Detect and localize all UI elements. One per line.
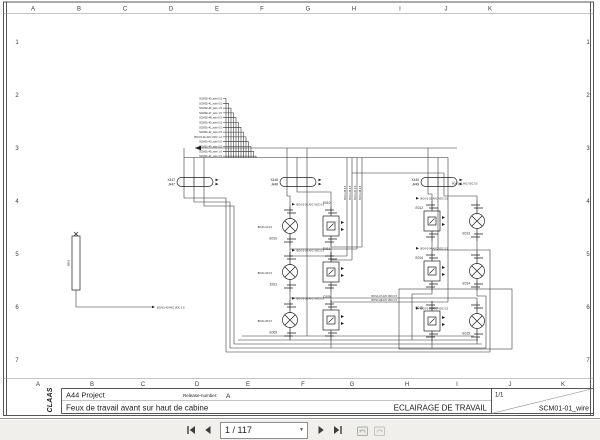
lamp-cluster-e015: E015 E015 BO/V1-06 AVC VDC 0.5 (416, 301, 485, 341)
ruler-number: 7 (15, 358, 19, 364)
last-page-icon (333, 425, 343, 435)
previous-view-button[interactable] (355, 422, 370, 438)
wire-label: BO/41-05 0.5 (344, 185, 347, 200)
claas-logo: CLAAS (47, 387, 54, 412)
next-view-button[interactable] (372, 422, 387, 438)
wire-label: BO/V1-02 AVC VDC 0.5 (421, 197, 449, 201)
last-page-button[interactable] (330, 422, 345, 438)
wire-label: BO/V1-41 AVC VDC 0.5 (452, 183, 478, 186)
ruler-letter: B (90, 382, 94, 388)
ruler-letter: C (141, 382, 146, 388)
ruler-letter: K (488, 7, 492, 13)
ruler-number: 6 (586, 305, 590, 311)
next-page-button[interactable] (313, 422, 328, 438)
viewer-toolbar: ▼ (0, 418, 600, 440)
lamp-cluster-e011: E011 E011 BO/V1-03 AVC VDC 0.5 BO/41-03 … (258, 247, 344, 292)
wire-label: BO/V1-04 AVC VDC 0.5 (421, 247, 449, 251)
wire-label: BO/V1-01 AVC VDC 0.5 (297, 203, 325, 207)
ruler-number: 7 (586, 358, 590, 364)
viewer-window: A B C D E F G H I J K A B C D E F G H I … (0, 0, 600, 440)
ruler-letter: I (456, 382, 458, 388)
wire-label: BO/41-06 0.5 (349, 185, 352, 200)
release-value: A (226, 393, 231, 400)
ruler-letter: F (301, 382, 305, 388)
ruler-number: 4 (15, 199, 19, 205)
next-page-icon (316, 425, 326, 435)
ruler-top: A B C D E F G H I J K (31, 7, 492, 13)
connector-mate-id: J448 (271, 183, 278, 187)
ruler-number: 2 (586, 93, 590, 99)
ruler-letter: B (77, 7, 81, 13)
ruler-letter: J (445, 7, 448, 13)
ruler-number: 3 (586, 146, 590, 152)
wire-label: BO/V1-05 AVC VDC 0.5 (297, 297, 325, 301)
connector-id: X447 (168, 178, 176, 182)
sheet-subtitle: Feux de travail avant sur haut de cabine (66, 404, 209, 413)
ruler-number: 5 (15, 252, 19, 258)
previous-view-icon (356, 424, 369, 437)
wire-label: BO/V1-06 AVC VDC 0.5 (421, 307, 449, 311)
lamp-cluster-e010: E010 E010 BO/V1-01 AVC VDC 0.5 BO/41-01 … (258, 201, 344, 246)
wire-label: BO/41-05 0.5 (258, 320, 273, 323)
wiring-diagram-page: A B C D E F G H I J K A B C D E F G H I … (0, 0, 600, 418)
ruler-letter: D (169, 7, 174, 13)
device-id: E011 (270, 283, 277, 287)
wire-label: SCM01-40_wire 0.5 (199, 121, 222, 125)
sheet-title: ECLAIRAGE DE TRAVAIL (394, 404, 488, 413)
page-frame (4, 2, 594, 416)
wire-label: SCM01-41_wire 0.5 (199, 125, 222, 129)
wire-label: BO/V1-01 AVC VDC 1.4 (194, 135, 222, 139)
wire-label: SCM02-40_wire 0.5 (199, 97, 222, 101)
device-id: E009 (270, 331, 278, 335)
exit-wire-labels: BO/V1-07 AVC VDC 0.5 BO/V1-08 AVC VDC 0.… (372, 295, 398, 302)
wire-label: BO/V1-07 AVC VDC 0.5 (372, 295, 398, 298)
project-title: A44 Project (66, 391, 106, 400)
ruler-number: 5 (586, 252, 590, 258)
ruler-left: 1 2 3 4 5 6 7 (15, 40, 19, 364)
device-id: E010 (270, 237, 278, 241)
ruler-right: 1 2 3 4 5 6 7 (586, 40, 590, 364)
previous-page-button[interactable] (200, 422, 215, 438)
device-id: E012 (416, 206, 424, 210)
lamp-cluster-e009: E009 C009 BO/V1-05 AVC VDC 0.5 BO/41-05 … (258, 295, 344, 340)
wire-label: BO/V1-08 AVC VDC 0.5 (372, 299, 398, 302)
ruler-letter: F (260, 7, 264, 13)
ruler-letter: E (246, 382, 250, 388)
device-id: E014 (463, 282, 471, 286)
device-id: E010 (323, 201, 331, 205)
ruler-letter: J (509, 382, 512, 388)
wire-label: SCM02-48_wire 0.5 (199, 116, 222, 120)
ruler-letter: A (36, 382, 40, 388)
page-number-combobox[interactable]: ▼ (220, 422, 308, 439)
title-block: CLAAS A44 Project Release-number: A Feux… (47, 387, 594, 413)
splice-id: XB01 (67, 259, 71, 266)
ruler-letter: G (350, 382, 355, 388)
wire-label: BO/41-07 0.5 (354, 185, 357, 200)
ruler-letter: K (561, 382, 565, 388)
previous-page-icon (203, 425, 213, 435)
ruler-letter: H (405, 382, 409, 388)
ruler-letter: G (306, 7, 311, 13)
ruler-number: 1 (586, 40, 590, 46)
wire-label: SCM01-43_wire 0.5 (199, 140, 222, 144)
drawing-code: SCM01-01_wire (539, 406, 589, 413)
first-page-icon (186, 425, 196, 435)
connector-x447: X447 J447 (168, 178, 219, 187)
ruler-number: 4 (586, 199, 590, 205)
ruler-letter: A (31, 7, 35, 13)
splice-bar: XB01 BO/V1-40 AVC VDC 1.5 (67, 232, 186, 309)
connector-x448: X448 J448 (271, 178, 322, 187)
wire-label: BO/V1-40 AVC VDC 1.5 (157, 305, 185, 309)
ruler-letter: D (195, 382, 200, 388)
lamp-cluster-e012-e013: E012 E013 BO/V1-02 AVC VDC 0.5 BO/V1-41 … (416, 183, 485, 242)
wire-label: BO/V1-03 AVC VDC 0.5 (297, 249, 325, 253)
wire-label: BO/41-03 0.5 (258, 272, 273, 275)
ruler-number: 6 (15, 305, 19, 311)
sheet-number: 1/1 (495, 393, 504, 399)
device-id: C009 (323, 295, 331, 299)
ruler-letter: E (215, 7, 219, 13)
chevron-down-icon[interactable]: ▼ (296, 423, 307, 438)
first-page-button[interactable] (183, 422, 198, 438)
connector-mate-id: J447 (168, 183, 175, 187)
release-label: Release-number: (183, 393, 218, 398)
connector-mate-id: J449 (412, 183, 419, 187)
wire-label: SCM01-42_wire 2.5 (199, 130, 222, 134)
device-id: E014 (416, 256, 424, 260)
next-view-icon (373, 424, 386, 437)
device-id: E015 (463, 332, 471, 336)
page-number-input[interactable] (221, 425, 296, 435)
ruler-number: 3 (15, 146, 19, 152)
wire-label: SCM02-47_wire 1.5 (199, 111, 222, 115)
wire-label: BO/41-01 0.5 (258, 226, 273, 229)
wire-label: SCM01-45_wire 1.0 (199, 149, 222, 153)
ruler-number: 2 (15, 93, 19, 99)
ruler-letter: I (399, 7, 401, 13)
wire-label: SCM02-41_wire 0.5 (199, 101, 222, 105)
ruler-bottom: A B C D E F G H I J K (36, 382, 565, 388)
vertical-wire-labels: BO/41-05 0.5 BO/41-06 0.5 BO/41-07 0.5 B… (344, 185, 362, 200)
lamp-cluster-e014: E014 E014 BO/V1-04 AVC VDC 0.5 (416, 247, 485, 292)
wire-label: BO/41-08 0.5 (359, 185, 362, 200)
ruler-number: 1 (15, 40, 19, 46)
connector-id: X448 (271, 178, 279, 182)
wire-label: SCM02-46_wire 1.5 (199, 106, 222, 110)
device-id: E013 (463, 232, 471, 236)
ruler-letter: H (352, 7, 356, 13)
ruler-letter: C (123, 7, 128, 13)
connector-id: X449 (412, 178, 420, 182)
